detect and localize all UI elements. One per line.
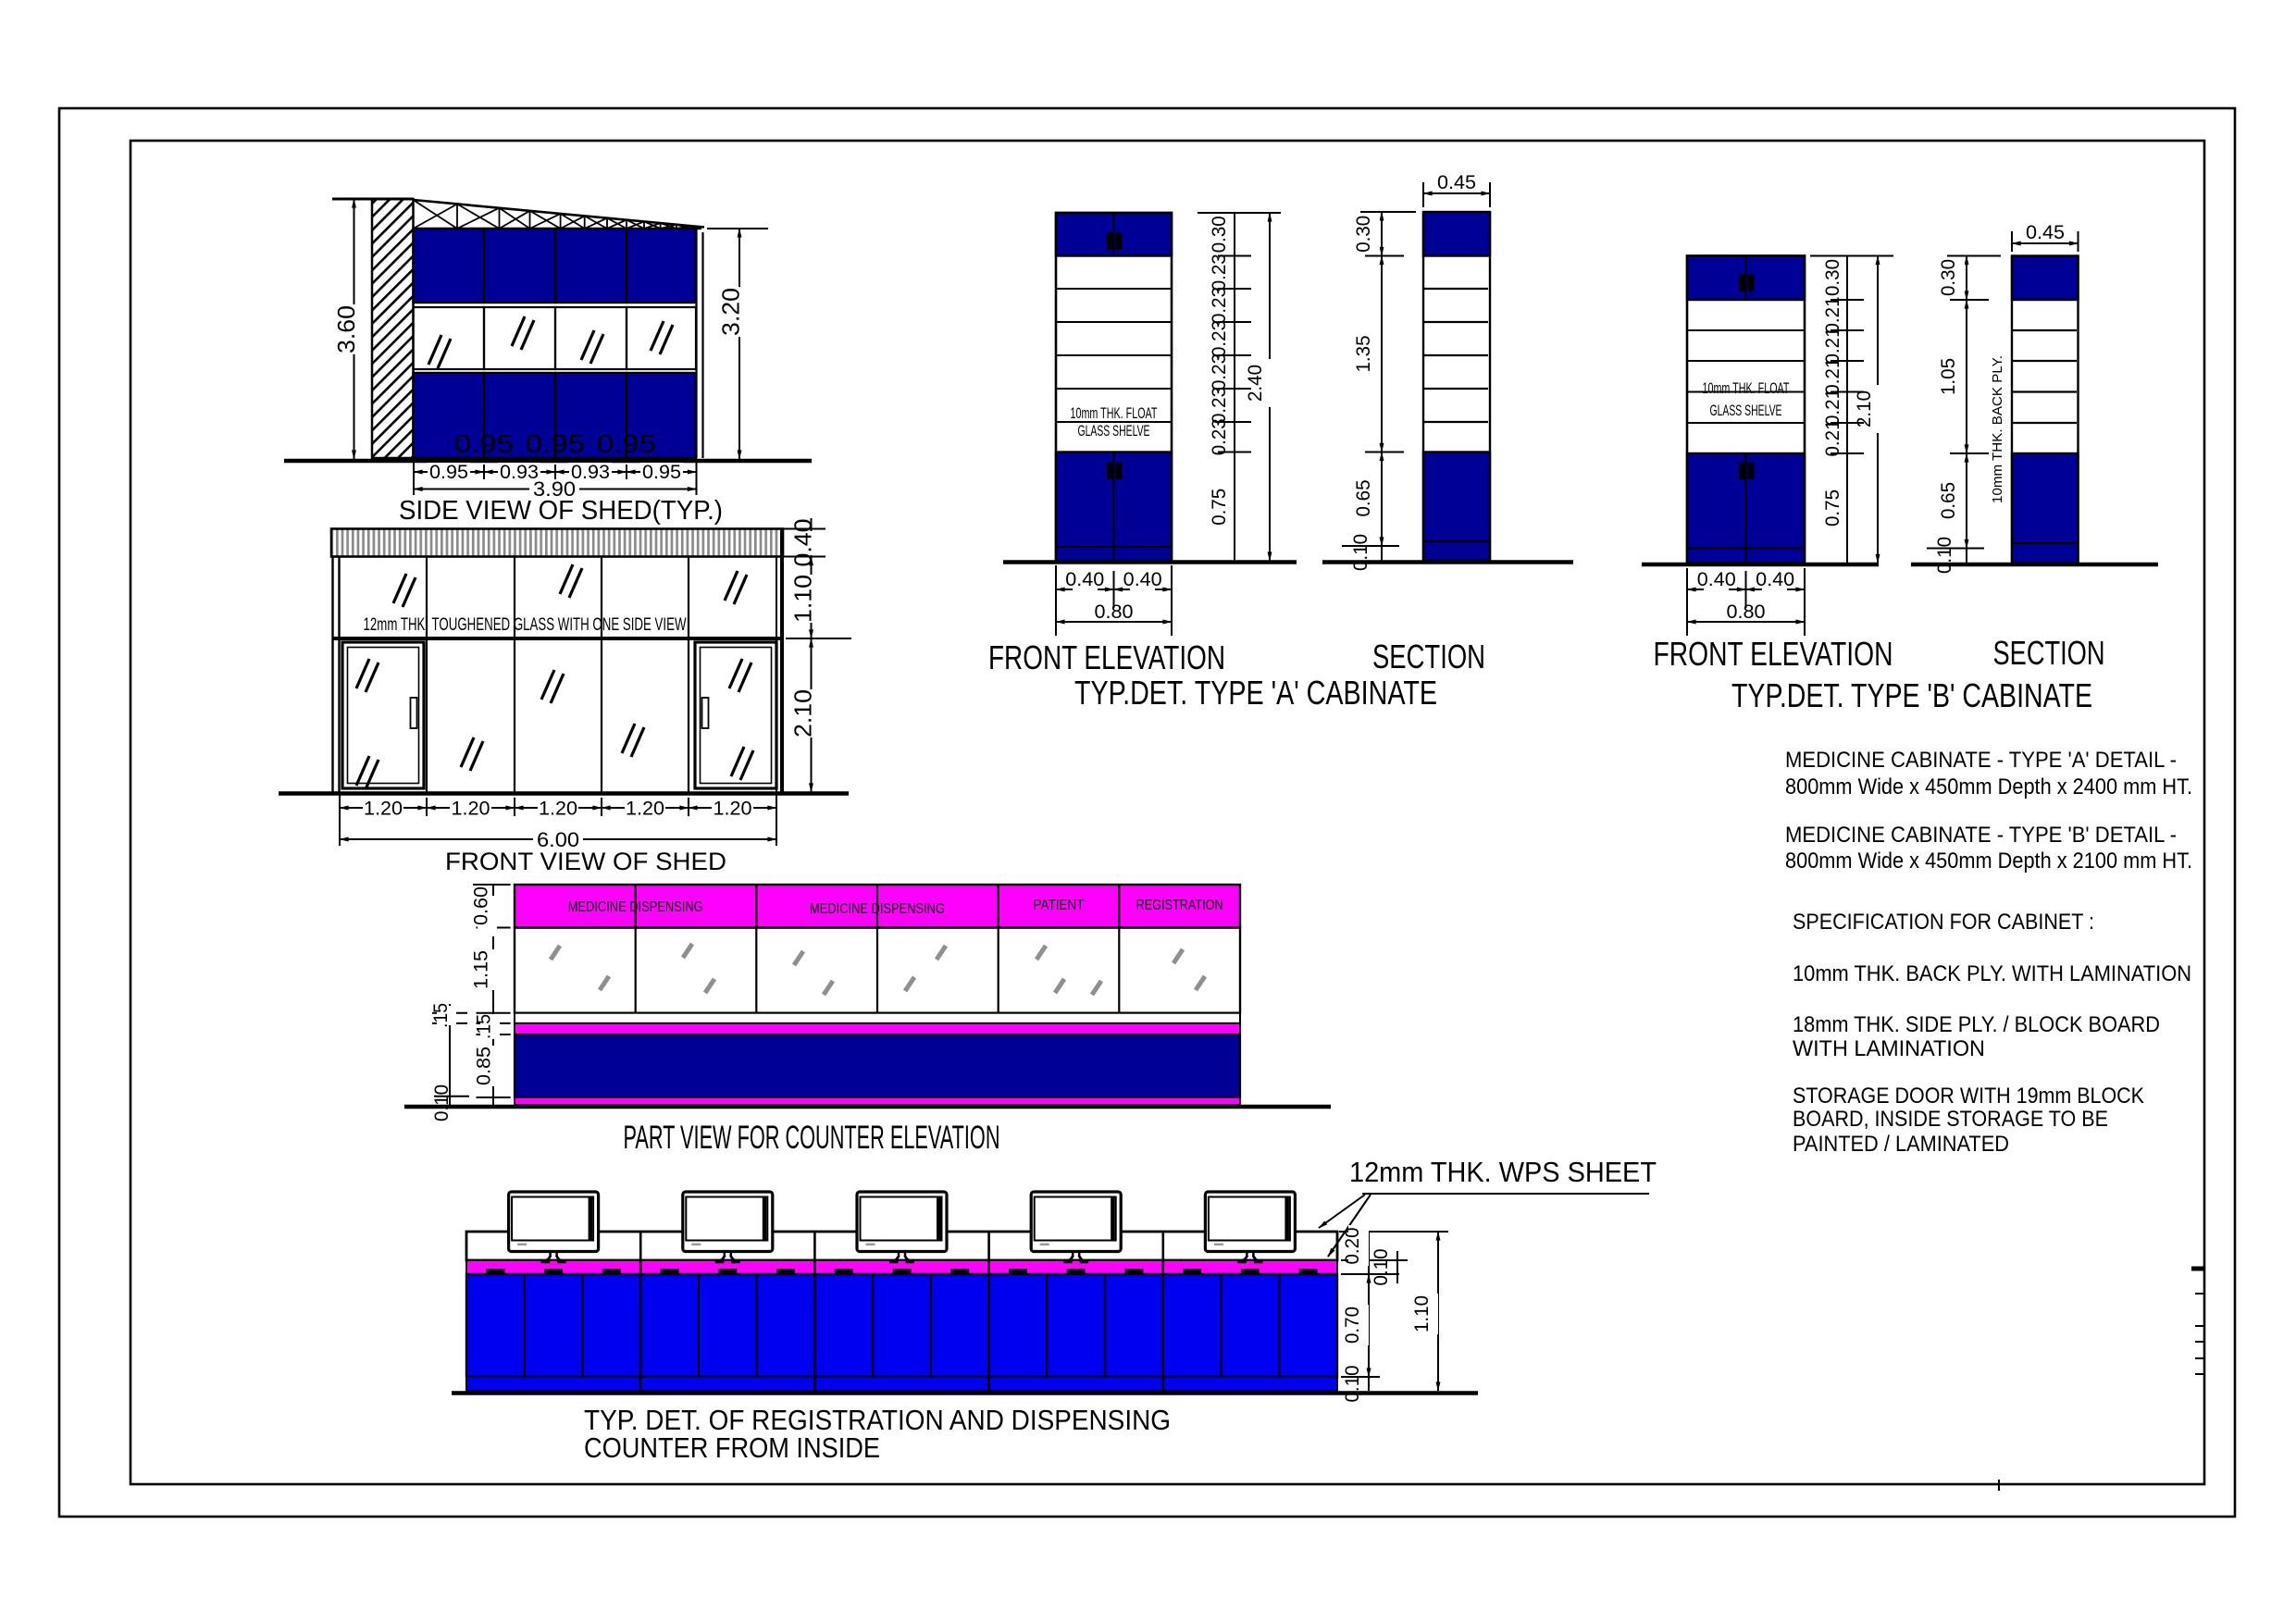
svg-text:2.10: 2.10 — [1854, 390, 1875, 427]
svg-text:12mm THK. WPS SHEET: 12mm THK. WPS SHEET — [1349, 1156, 1657, 1188]
svg-text:0.95: 0.95 — [526, 429, 585, 458]
svg-text:0.23: 0.23 — [1209, 418, 1230, 455]
svg-text:0.45: 0.45 — [1437, 172, 1476, 193]
svg-text:0.30: 0.30 — [1353, 216, 1374, 253]
svg-text:COUNTER FROM INSIDE: COUNTER FROM INSIDE — [584, 1431, 880, 1464]
svg-text:0.20: 0.20 — [1342, 1228, 1363, 1265]
svg-text:0.95: 0.95 — [597, 429, 656, 458]
svg-text:0.95: 0.95 — [642, 462, 681, 483]
svg-text:PATIENT: PATIENT — [1034, 898, 1085, 913]
svg-text:GLASS SHELVE: GLASS SHELVE — [1078, 422, 1150, 440]
svg-text:2.10: 2.10 — [789, 689, 817, 737]
svg-text:1.15: 1.15 — [471, 950, 492, 989]
svg-text:TYP.DET. TYPE 'B' CABINATE: TYP.DET. TYPE 'B' CABINATE — [1731, 676, 2092, 714]
svg-text:800mm Wide x 450mm Depth x 210: 800mm Wide x 450mm Depth x 2100 mm HT. — [1785, 849, 2192, 873]
svg-text:1.20: 1.20 — [452, 799, 490, 820]
svg-text:0.40: 0.40 — [789, 519, 817, 567]
svg-text:FRONT ELEVATION: FRONT ELEVATION — [988, 638, 1225, 676]
svg-text:TYP.DET. TYPE 'A' CABINATE: TYP.DET. TYPE 'A' CABINATE — [1074, 674, 1437, 712]
svg-text:0.10: 0.10 — [1350, 534, 1371, 571]
svg-text:0.40: 0.40 — [1697, 569, 1736, 590]
svg-text:0.80: 0.80 — [1095, 601, 1134, 623]
svg-text:0.23: 0.23 — [1209, 287, 1230, 324]
svg-text:0.10: 0.10 — [1934, 537, 1955, 574]
svg-text:SECTION: SECTION — [1372, 638, 1485, 675]
svg-text:0.75: 0.75 — [1209, 489, 1230, 526]
svg-text:1.20: 1.20 — [714, 799, 752, 820]
svg-text:10mm THK. BACK PLY.: 10mm THK. BACK PLY. — [1990, 355, 2005, 503]
svg-text:0.65: 0.65 — [1938, 482, 1959, 519]
svg-text:0.23: 0.23 — [1209, 254, 1230, 291]
svg-text:0.30: 0.30 — [1822, 259, 1843, 296]
svg-text:0.45: 0.45 — [2026, 222, 2065, 243]
svg-text:0.23: 0.23 — [1209, 353, 1230, 390]
svg-text:BOARD, INSIDE STORAGE TO BE: BOARD, INSIDE STORAGE TO BE — [1793, 1107, 2108, 1132]
svg-text:MEDICINE DISPENSING: MEDICINE DISPENSING — [810, 901, 945, 917]
svg-text:SECTION: SECTION — [1993, 634, 2105, 672]
svg-text:0.40: 0.40 — [1756, 569, 1794, 590]
svg-text:0.30: 0.30 — [1209, 216, 1230, 253]
svg-text:0.10: 0.10 — [1371, 1249, 1392, 1286]
svg-text:0.85: 0.85 — [474, 1047, 495, 1085]
svg-text:PAINTED / LAMINATED: PAINTED / LAMINATED — [1793, 1132, 2009, 1157]
svg-text:0.95: 0.95 — [454, 429, 514, 458]
svg-text:MEDICINE CABINATE - TYPE 'B': MEDICINE CABINATE - TYPE 'B' DETAIL - — [1785, 823, 2177, 848]
svg-text:FRONT VIEW OF SHED: FRONT VIEW OF SHED — [445, 848, 726, 875]
svg-text:1.20: 1.20 — [364, 799, 403, 820]
svg-text:2.40: 2.40 — [1245, 365, 1266, 402]
svg-text:MEDICINE DISPENSING: MEDICINE DISPENSING — [568, 899, 703, 915]
svg-text:0.75: 0.75 — [1822, 489, 1843, 527]
svg-text:0.70: 0.70 — [1342, 1307, 1363, 1344]
svg-text:0.10: 0.10 — [431, 1084, 453, 1121]
svg-text:GLASS SHELVE: GLASS SHELVE — [1710, 402, 1782, 419]
svg-text:1.20: 1.20 — [539, 799, 577, 820]
svg-text:0.40: 0.40 — [1065, 569, 1104, 590]
svg-text:1.20: 1.20 — [626, 799, 664, 820]
svg-text:0.21: 0.21 — [1822, 420, 1843, 457]
svg-text:18mm THK. SIDE PLY. / BLOCK BO: 18mm THK. SIDE PLY. / BLOCK BOARD — [1793, 1012, 2160, 1037]
svg-text:SIDE VIEW OF SHED(TYP.): SIDE VIEW OF SHED(TYP.) — [399, 496, 723, 526]
svg-text:MEDICINE CABINATE - TYPE 'A': MEDICINE CABINATE - TYPE 'A' DETAIL - — [1785, 748, 2177, 773]
svg-text:0.10: 0.10 — [1342, 1366, 1363, 1403]
svg-text:1.10: 1.10 — [789, 575, 817, 623]
svg-text:1.35: 1.35 — [1353, 336, 1374, 373]
svg-text:SPECIFICATION FOR CABINET :: SPECIFICATION FOR CABINET : — [1793, 910, 2094, 935]
svg-text:.15: .15 — [430, 1003, 452, 1028]
svg-text:0.23: 0.23 — [1209, 387, 1230, 424]
svg-text:.15: .15 — [474, 1014, 495, 1039]
svg-text:0.40: 0.40 — [1123, 569, 1162, 590]
svg-text:0.30: 0.30 — [1938, 259, 1959, 296]
svg-text:10mm THK. FLOAT: 10mm THK. FLOAT — [1071, 404, 1158, 422]
svg-text:0.23: 0.23 — [1209, 320, 1230, 357]
svg-text:PART VIEW FOR COUNTER ELEVATIO: PART VIEW FOR COUNTER ELEVATION — [624, 1120, 1000, 1156]
svg-text:3.60: 3.60 — [332, 305, 360, 353]
svg-text:1.10: 1.10 — [1411, 1295, 1433, 1332]
svg-text:STORAGE DOOR WITH 19mm BLOCK: STORAGE DOOR WITH 19mm BLOCK — [1793, 1084, 2144, 1109]
svg-text:0.95: 0.95 — [429, 462, 468, 483]
svg-text:0.80: 0.80 — [1727, 601, 1766, 623]
svg-text:0.60: 0.60 — [471, 886, 492, 925]
svg-text:0.65: 0.65 — [1353, 480, 1374, 517]
svg-text:WITH LAMINATION: WITH LAMINATION — [1793, 1036, 1985, 1061]
svg-text:12mm THK. TOUGHENED GLASS WITH: 12mm THK. TOUGHENED GLASS WITH ONE SIDE … — [364, 615, 687, 635]
svg-text:FRONT ELEVATION: FRONT ELEVATION — [1654, 635, 1893, 673]
svg-text:3.20: 3.20 — [717, 288, 745, 336]
svg-text:10mm THK. BACK PLY. WITH LAMIN: 10mm THK. BACK PLY. WITH LAMINATION — [1793, 961, 2191, 986]
svg-text:REGISTRATION: REGISTRATION — [1136, 898, 1223, 913]
svg-text:10mm THK. FLOAT: 10mm THK. FLOAT — [1703, 379, 1790, 397]
svg-text:800mm Wide x 450mm Depth x 240: 800mm Wide x 450mm Depth x 2400 mm HT. — [1785, 774, 2192, 799]
svg-text:1.05: 1.05 — [1938, 358, 1959, 395]
